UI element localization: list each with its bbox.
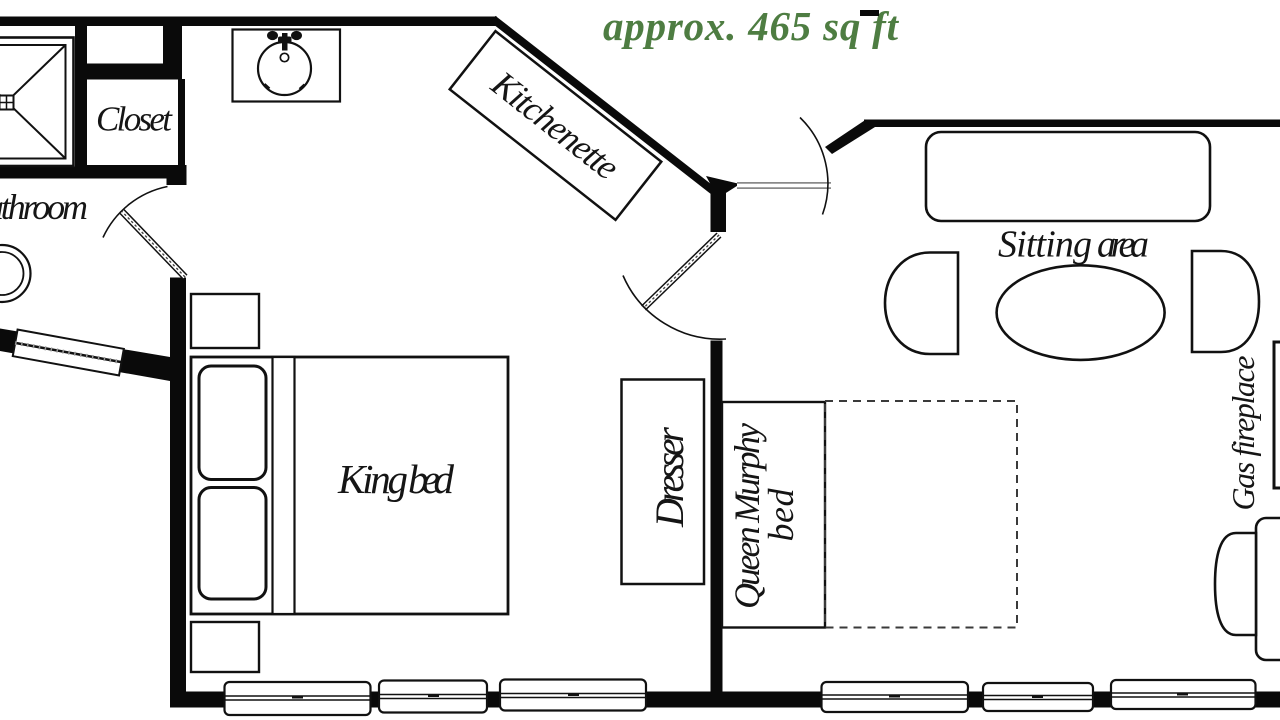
svg-text:bed: bed <box>761 488 801 542</box>
svg-text:King: King <box>337 456 408 502</box>
svg-text:Dresser: Dresser <box>647 427 692 528</box>
svg-text:Sitting: Sitting <box>998 224 1092 266</box>
svg-text:Gas fireplace: Gas fireplace <box>1225 356 1261 511</box>
svg-text:Bathroom: Bathroom <box>0 187 88 227</box>
svg-text:Closet: Closet <box>96 100 173 139</box>
svg-text:bed: bed <box>408 456 455 502</box>
svg-text:approx. 465 sq ft: approx. 465 sq ft <box>603 3 900 49</box>
svg-text:area: area <box>1097 224 1149 266</box>
